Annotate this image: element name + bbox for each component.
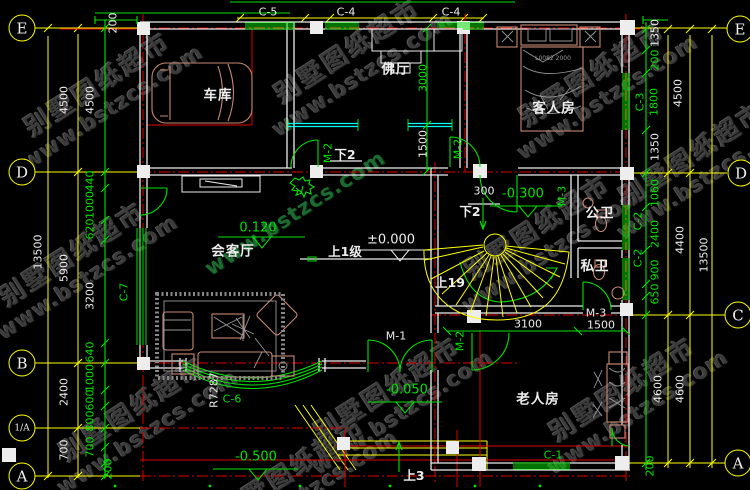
door-tag: M-2 [323, 143, 334, 163]
dimension-text: C-2 [633, 249, 644, 268]
door-tag: M-3 [586, 308, 606, 319]
room-label: 私卫 [581, 260, 610, 274]
grid-marker-left-e: E [9, 15, 36, 42]
window-tag: C-4 [442, 7, 461, 18]
door-tag: M-1 [386, 331, 406, 342]
grid-marker-left-1-a: 1/A [9, 415, 36, 442]
dimension-text: 3200 [85, 282, 96, 310]
dimension-text: 600 [85, 390, 96, 411]
stair-step-label: 上3 [403, 470, 424, 483]
dimension-text: 1500 [587, 320, 615, 331]
dimension-text: 200 [108, 13, 119, 34]
dimension-text: 650 [650, 284, 661, 305]
grid-marker-right-d: D [728, 160, 750, 187]
window-tag: C-5 [259, 7, 278, 18]
dimension-text: 13500 [33, 235, 44, 270]
grid-marker-right-c: C [725, 302, 750, 329]
dimension-text: 200 [103, 459, 114, 480]
dimension-text: C-3 [635, 93, 646, 112]
dimension-text: 200 [650, 50, 661, 71]
dimension-text: 2400 [650, 220, 661, 248]
dimension-text: C-6 [223, 394, 242, 405]
dimension-text: 620 [85, 219, 96, 240]
dimension-text: C-2 [633, 212, 644, 231]
grid-marker-left-b: B [9, 350, 36, 377]
room-label: 老人房 [516, 393, 560, 407]
dimension-text: R7287 [209, 372, 220, 408]
door-tag: M-2 [455, 331, 466, 351]
elevation-label: -0.300 [502, 188, 544, 201]
room-label: 公卫 [586, 207, 615, 221]
text-layer: C-5C-4C-4车库佛厅客人房会客厅公卫私卫老人房13500450045002… [0, 0, 750, 490]
grid-marker-right-e: E [727, 16, 750, 43]
stair-step-label: 下2 [459, 206, 480, 219]
dimension-text: 440 [85, 171, 96, 192]
elevation-label: ±0.000 [367, 234, 415, 247]
dimension-text: 640 [85, 342, 96, 363]
dimension-text: C-7 [119, 283, 130, 302]
dimension-text: 4500 [59, 86, 70, 114]
dimension-text: 300 [474, 186, 495, 197]
dimension-text: 700 [59, 440, 70, 461]
dimension-text: 1800 [649, 88, 660, 116]
dimension-text: 4400 [675, 226, 686, 254]
dimension-text: 2400 [59, 378, 70, 406]
dimension-text: 4500 [85, 86, 96, 114]
dimension-text: 1000 [85, 191, 96, 219]
dimension-text: 3000 [418, 64, 429, 92]
dimension-text: 1060 [650, 179, 661, 207]
elevation-label: -0.050 [386, 384, 428, 397]
dimension-text: C-1 [544, 450, 563, 461]
elevation-label: 0.120 [239, 222, 276, 235]
dimension-text: 3100 [514, 319, 542, 330]
grid-marker-left-a: A [9, 463, 36, 490]
floor-plan-page: 别墅图纸超市www.bstzcs.com别墅图纸超市www.bstzcs.com… [0, 0, 750, 490]
grid-marker-right-a: A [725, 450, 750, 477]
dimension-text: 700 [85, 437, 96, 458]
elevation-label: -0.500 [235, 451, 277, 464]
dimension-text: 800 [85, 411, 96, 432]
dimension-text: 1000 [85, 364, 96, 392]
stair-step-label: 下2 [334, 149, 355, 162]
grid-marker-left-d: D [9, 159, 36, 186]
stair-step-label: 上19 [435, 277, 465, 290]
furniture-tag: L0082 2000 [535, 56, 571, 62]
dimension-text: 4500 [673, 79, 684, 107]
dimension-text: 13500 [699, 238, 710, 273]
dimension-text: 1500 [418, 130, 429, 158]
dimension-text: 5900 [59, 254, 70, 282]
dimension-text: 1350 [650, 19, 661, 47]
dimension-text: 200 [645, 456, 656, 477]
window-tag: C-4 [337, 7, 356, 18]
dimension-text: 4600 [653, 375, 664, 403]
dimension-text: 1350 [650, 133, 661, 161]
room-label: 客人房 [532, 102, 576, 116]
room-label: 佛厅 [382, 63, 411, 77]
door-tag: M-3 [557, 186, 568, 206]
dimension-text: 4600 [675, 375, 686, 403]
door-tag: M-2 [453, 139, 464, 159]
stair-step-label: 上1级 [328, 246, 362, 259]
room-label: 车库 [204, 89, 233, 103]
room-label: 会客厅 [211, 245, 255, 259]
dimension-text: 900 [650, 260, 661, 281]
